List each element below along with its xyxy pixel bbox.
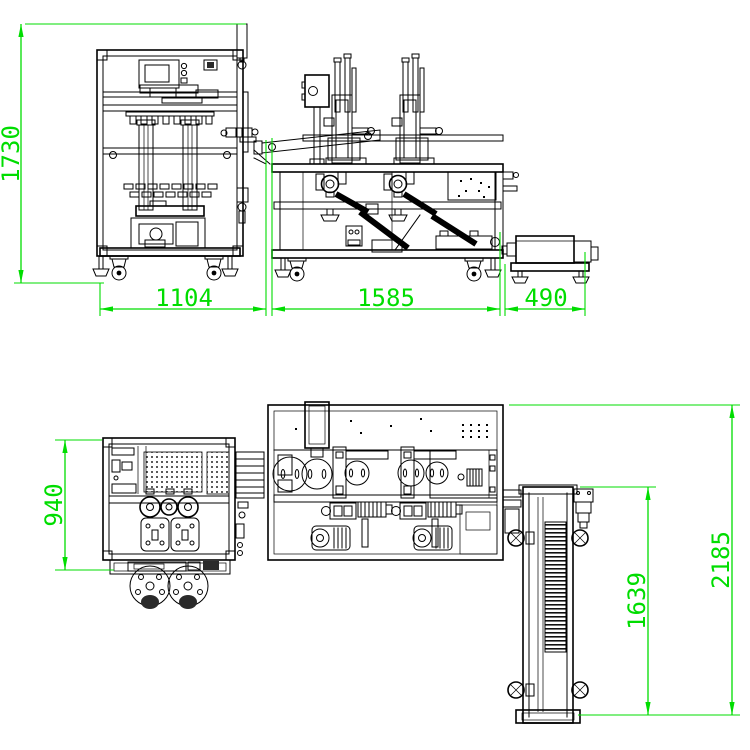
station-cluster-1	[322, 502, 393, 547]
dim-width-outfeed-label: 490	[524, 284, 567, 312]
tooling-row	[126, 112, 214, 124]
tower-station-1	[324, 54, 375, 164]
cabinet-machine-front	[93, 24, 258, 280]
casters	[110, 256, 223, 280]
dim-width-left-label: 1104	[155, 284, 213, 312]
conveyor-motor	[574, 489, 593, 528]
dimension-1639: 1639	[580, 487, 656, 715]
vertical-conveyor-plan	[508, 485, 593, 723]
engineering-drawing-canvas: 1730 1104 1585 490	[0, 0, 750, 750]
brush-rows	[124, 184, 217, 197]
vacuum-plates	[141, 518, 199, 551]
perforated-plate	[144, 452, 202, 492]
scalloped-discs	[130, 566, 208, 609]
outfeed-unit-front	[502, 236, 598, 283]
dim-overall-label: 2185	[707, 531, 735, 589]
electrical-box-plan	[305, 402, 329, 448]
signal-rod	[237, 24, 247, 69]
pick-arm	[221, 128, 380, 164]
dimension-2185: 2185	[509, 405, 740, 715]
table-mechanisms	[316, 172, 519, 214]
drive-unit	[131, 218, 205, 248]
dim-height-label: 1730	[0, 125, 25, 183]
front-elevation-view: 1730 1104 1585 490	[0, 24, 598, 316]
dim-depth-label: 940	[40, 483, 68, 526]
dimension-490: 490	[505, 252, 585, 316]
dim-width-main-label: 1585	[357, 284, 415, 312]
station-cluster-2	[392, 502, 463, 547]
vent-dots	[462, 424, 488, 438]
main-machine-casters	[275, 258, 501, 281]
tower-station-2	[392, 54, 443, 164]
gearmotor-1	[311, 526, 350, 550]
perforated-plate-2	[207, 452, 229, 494]
main-machine-plan	[268, 402, 521, 560]
reel-discs	[273, 457, 448, 491]
lower-drive-linkage	[346, 204, 500, 252]
interface-rack	[236, 452, 264, 556]
machine-drawing-svg: 1730 1104 1585 490	[0, 0, 750, 750]
conveyor-belt	[545, 522, 566, 652]
dim-conveyor-label: 1639	[623, 572, 651, 630]
electrical-box	[302, 75, 329, 164]
hmi-panel	[139, 60, 187, 88]
cabinet-machine-plan	[103, 438, 264, 609]
plan-view: 940 1639 2185	[40, 402, 740, 723]
